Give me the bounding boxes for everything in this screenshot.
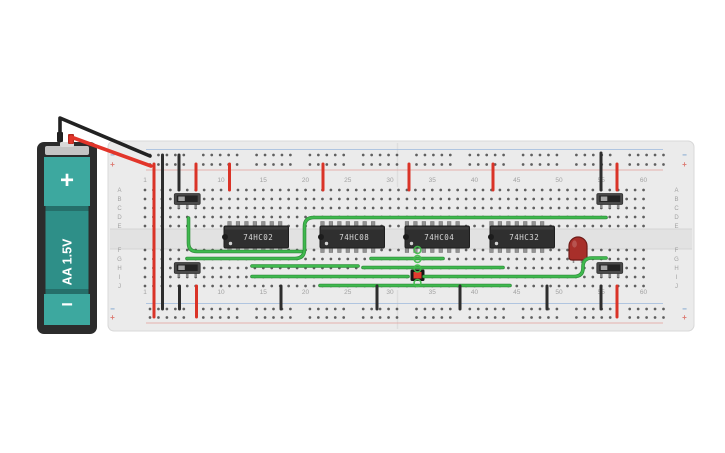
hole — [174, 163, 177, 166]
hole — [245, 267, 248, 270]
hole — [202, 154, 205, 157]
row-letter: D — [117, 215, 122, 221]
hole — [236, 154, 239, 157]
hole — [338, 189, 341, 192]
hole — [272, 163, 275, 166]
hole — [558, 207, 561, 210]
hole — [254, 198, 257, 201]
hole — [539, 316, 542, 319]
hole — [654, 163, 657, 166]
hole — [645, 316, 648, 319]
hole — [645, 308, 648, 311]
hole — [166, 316, 169, 319]
hole — [608, 216, 611, 219]
hole — [482, 189, 485, 192]
hole — [279, 189, 282, 192]
hole — [431, 189, 434, 192]
hole — [549, 267, 552, 270]
hole — [575, 207, 578, 210]
hole — [317, 163, 320, 166]
center-channel — [110, 229, 692, 249]
hole — [177, 216, 180, 219]
row-letter: C — [117, 206, 122, 212]
hole — [387, 316, 390, 319]
hole — [424, 154, 427, 157]
hole — [363, 258, 366, 261]
column-number: 40 — [471, 177, 479, 184]
hole — [432, 163, 435, 166]
hole — [380, 189, 383, 192]
hole — [456, 189, 459, 192]
hole — [236, 308, 239, 311]
hole — [220, 285, 223, 288]
hole — [228, 207, 231, 210]
hole — [406, 207, 409, 210]
ic-chip-74hc32[interactable]: 74HC32 — [488, 222, 555, 253]
hole — [406, 198, 409, 201]
hole — [549, 189, 552, 192]
row-letter: F — [675, 248, 679, 254]
hole — [289, 316, 292, 319]
hole — [634, 198, 637, 201]
hole — [174, 316, 177, 319]
chip-notch — [403, 234, 409, 240]
hole — [194, 216, 197, 219]
hole — [264, 154, 267, 157]
hole — [389, 225, 392, 228]
hole — [211, 207, 214, 210]
hole — [608, 249, 611, 252]
hole — [182, 154, 185, 157]
hole — [325, 316, 328, 319]
hole — [296, 207, 299, 210]
hole — [522, 154, 525, 157]
hole — [262, 198, 265, 201]
hole — [210, 163, 213, 166]
hole — [432, 308, 435, 311]
hole — [254, 207, 257, 210]
hole — [389, 198, 392, 201]
slide-switch-top-right[interactable] — [597, 194, 623, 209]
hole — [220, 216, 223, 219]
hole — [313, 285, 316, 288]
hole — [524, 189, 527, 192]
hole — [499, 189, 502, 192]
hole — [532, 258, 535, 261]
hole — [592, 285, 595, 288]
bus-plus-label: + — [110, 160, 115, 169]
hole — [380, 207, 383, 210]
hole — [169, 216, 172, 219]
hole — [539, 308, 542, 311]
hole — [317, 316, 320, 319]
hole — [220, 225, 223, 228]
hole — [456, 198, 459, 201]
hole — [228, 216, 231, 219]
row-letter: G — [117, 257, 122, 263]
hole — [522, 308, 525, 311]
hole — [313, 189, 316, 192]
hole — [169, 276, 172, 279]
hole — [625, 276, 628, 279]
hole — [423, 207, 426, 210]
switch-knob[interactable] — [178, 266, 185, 271]
column-number: 10 — [217, 289, 225, 296]
hole — [441, 163, 444, 166]
hole — [396, 154, 399, 157]
row-letter: C — [674, 206, 679, 212]
hole — [584, 163, 587, 166]
ic-chip-74hc02[interactable]: 74HC02 — [222, 222, 289, 253]
hole — [169, 198, 172, 201]
hole — [255, 316, 258, 319]
hole — [144, 216, 147, 219]
hole — [202, 308, 205, 311]
hole — [625, 207, 628, 210]
hole — [270, 198, 273, 201]
chip-highlight — [225, 227, 288, 230]
hole — [379, 163, 382, 166]
hole — [321, 207, 324, 210]
hole — [220, 207, 223, 210]
ic-chip-74hc04[interactable]: 74HC04 — [403, 222, 470, 253]
bus-minus-label: − — [682, 151, 687, 160]
hole — [583, 276, 586, 279]
hole — [592, 163, 595, 166]
hole — [617, 249, 620, 252]
chip-label: 74HC04 — [424, 233, 454, 242]
hole — [177, 225, 180, 228]
hole — [608, 285, 611, 288]
hole — [362, 316, 365, 319]
hole — [313, 249, 316, 252]
hole — [662, 163, 665, 166]
hole — [174, 308, 177, 311]
chip-label: 74HC02 — [243, 233, 273, 242]
hole — [325, 163, 328, 166]
hole — [149, 316, 152, 319]
slide-switch-top-left[interactable] — [174, 194, 200, 209]
hole — [424, 308, 427, 311]
switch-knob[interactable] — [178, 197, 185, 202]
hole — [313, 207, 316, 210]
hole — [321, 198, 324, 201]
hole — [558, 198, 561, 201]
hole — [203, 267, 206, 270]
hole — [575, 163, 578, 166]
hole — [532, 207, 535, 210]
hole — [592, 267, 595, 270]
hole — [617, 216, 620, 219]
hole — [279, 216, 282, 219]
hole — [317, 154, 320, 157]
hole — [473, 258, 476, 261]
hole — [530, 316, 533, 319]
hole — [494, 154, 497, 157]
hole — [448, 258, 451, 261]
hole — [507, 258, 510, 261]
chip-pin1-dot — [410, 242, 413, 245]
switch-knob[interactable] — [601, 197, 608, 202]
hole — [625, 249, 628, 252]
hole — [490, 198, 493, 201]
hole — [397, 249, 400, 252]
chip-highlight — [321, 227, 384, 230]
hole — [549, 207, 552, 210]
hole — [541, 258, 544, 261]
hole — [228, 285, 231, 288]
hole — [468, 308, 471, 311]
hole — [566, 189, 569, 192]
hole — [645, 163, 648, 166]
column-number: 1 — [143, 177, 147, 184]
hole — [592, 225, 595, 228]
hole — [628, 316, 631, 319]
hole — [330, 189, 333, 192]
hole — [625, 285, 628, 288]
hole — [169, 258, 172, 261]
hole — [186, 285, 189, 288]
hole — [584, 308, 587, 311]
hole — [634, 189, 637, 192]
ic-chip-74hc08[interactable]: 74HC08 — [318, 222, 385, 253]
hole — [169, 267, 172, 270]
hole — [279, 207, 282, 210]
hole — [539, 154, 542, 157]
hole — [609, 163, 612, 166]
hole — [309, 316, 312, 319]
hole — [220, 267, 223, 270]
hole — [397, 198, 400, 201]
hole — [642, 249, 645, 252]
hole — [634, 207, 637, 210]
hole — [362, 154, 365, 157]
hole — [380, 249, 383, 252]
column-number: 45 — [513, 177, 521, 184]
hole — [169, 189, 172, 192]
hole — [592, 198, 595, 201]
hole — [556, 154, 559, 157]
hole — [608, 225, 611, 228]
hole — [346, 198, 349, 201]
hole — [439, 189, 442, 192]
chip-highlight — [406, 227, 469, 230]
hole — [262, 189, 265, 192]
hole — [515, 189, 518, 192]
hole — [355, 198, 358, 201]
hole — [608, 189, 611, 192]
hole — [219, 154, 222, 157]
hole — [642, 285, 645, 288]
hole — [270, 285, 273, 288]
hole — [355, 207, 358, 210]
hole — [414, 207, 417, 210]
battery-terminal-plate — [45, 146, 89, 155]
hole — [634, 225, 637, 228]
hole — [431, 198, 434, 201]
hole — [473, 198, 476, 201]
chip-label: 74HC32 — [509, 233, 539, 242]
hole — [370, 308, 373, 311]
hole — [296, 189, 299, 192]
hole — [346, 207, 349, 210]
hole — [342, 316, 345, 319]
hole — [441, 154, 444, 157]
hole — [465, 189, 468, 192]
hole — [194, 225, 197, 228]
switch-knob[interactable] — [601, 266, 608, 271]
hole — [532, 189, 535, 192]
hole — [583, 189, 586, 192]
hole — [346, 258, 349, 261]
hole — [264, 163, 267, 166]
hole — [370, 316, 373, 319]
hole — [355, 258, 358, 261]
hole — [334, 316, 337, 319]
hole — [515, 198, 518, 201]
hole — [387, 308, 390, 311]
row-letter: E — [117, 224, 121, 230]
hole — [477, 154, 480, 157]
hole — [330, 258, 333, 261]
chip-pin1-dot — [229, 242, 232, 245]
hole — [338, 207, 341, 210]
column-number: 40 — [471, 289, 479, 296]
hole — [313, 258, 316, 261]
hole — [634, 276, 637, 279]
slide-switch-bottom-left[interactable] — [174, 263, 200, 278]
hole — [255, 163, 258, 166]
hole — [264, 316, 267, 319]
column-number: 60 — [640, 289, 648, 296]
hole — [363, 189, 366, 192]
hole — [157, 308, 160, 311]
column-number: 10 — [217, 177, 225, 184]
hole — [592, 249, 595, 252]
hole — [334, 308, 337, 311]
hole — [210, 154, 213, 157]
hole — [202, 163, 205, 166]
hole — [637, 316, 640, 319]
hole — [372, 189, 375, 192]
column-number: 20 — [302, 289, 310, 296]
hole — [482, 258, 485, 261]
hole — [637, 308, 640, 311]
hole — [575, 198, 578, 201]
hole — [309, 154, 312, 157]
hole — [522, 163, 525, 166]
led-highlight — [572, 240, 577, 247]
hole — [600, 249, 603, 252]
row-letter: F — [118, 248, 122, 254]
hole — [169, 207, 172, 210]
hole — [342, 154, 345, 157]
hole — [363, 207, 366, 210]
hole — [609, 316, 612, 319]
hole — [642, 216, 645, 219]
hole — [628, 308, 631, 311]
hole — [281, 154, 284, 157]
chip-pin1-dot — [325, 242, 328, 245]
hole — [228, 267, 231, 270]
hole — [592, 316, 595, 319]
hole — [558, 258, 561, 261]
slide-switch-bottom-right[interactable] — [597, 263, 623, 278]
led-body[interactable] — [569, 237, 587, 260]
hole — [287, 207, 290, 210]
hole — [575, 154, 578, 157]
hole — [549, 198, 552, 201]
hole — [634, 216, 637, 219]
hole — [304, 285, 307, 288]
hole — [642, 276, 645, 279]
hole — [397, 225, 400, 228]
hole — [186, 189, 189, 192]
hole — [304, 207, 307, 210]
hole — [625, 216, 628, 219]
hole — [309, 308, 312, 311]
hole — [203, 285, 206, 288]
battery-minus-symbol: − — [61, 294, 73, 316]
hole — [296, 216, 299, 219]
hole — [228, 198, 231, 201]
hole — [227, 154, 230, 157]
hole — [558, 249, 561, 252]
hole — [485, 316, 488, 319]
hole — [583, 198, 586, 201]
hole — [530, 308, 533, 311]
hole — [465, 249, 468, 252]
hole — [219, 316, 222, 319]
hole — [211, 225, 214, 228]
hole — [456, 258, 459, 261]
hole — [211, 285, 214, 288]
hole — [432, 316, 435, 319]
hole — [424, 163, 427, 166]
hole — [584, 316, 587, 319]
bus-plus-label: + — [110, 313, 115, 322]
column-number: 45 — [513, 289, 521, 296]
hole — [628, 163, 631, 166]
hole — [342, 163, 345, 166]
hole — [592, 308, 595, 311]
row-letter: E — [674, 224, 678, 230]
hole — [346, 189, 349, 192]
hole — [262, 285, 265, 288]
column-number: 15 — [260, 289, 268, 296]
column-number: 50 — [555, 289, 563, 296]
hole — [547, 316, 550, 319]
hole — [530, 163, 533, 166]
hole — [237, 267, 240, 270]
pushbutton-cap[interactable] — [414, 272, 422, 279]
hole — [227, 308, 230, 311]
hole — [524, 267, 527, 270]
battery-aa[interactable]: +−AA 1.5V — [37, 132, 97, 334]
hole — [549, 285, 552, 288]
hole — [541, 267, 544, 270]
hole — [355, 189, 358, 192]
hole — [482, 207, 485, 210]
hole — [515, 207, 518, 210]
hole — [499, 258, 502, 261]
hole — [237, 207, 240, 210]
hole — [415, 316, 418, 319]
hole — [477, 163, 480, 166]
hole — [575, 285, 578, 288]
hole — [321, 258, 324, 261]
hole — [637, 154, 640, 157]
